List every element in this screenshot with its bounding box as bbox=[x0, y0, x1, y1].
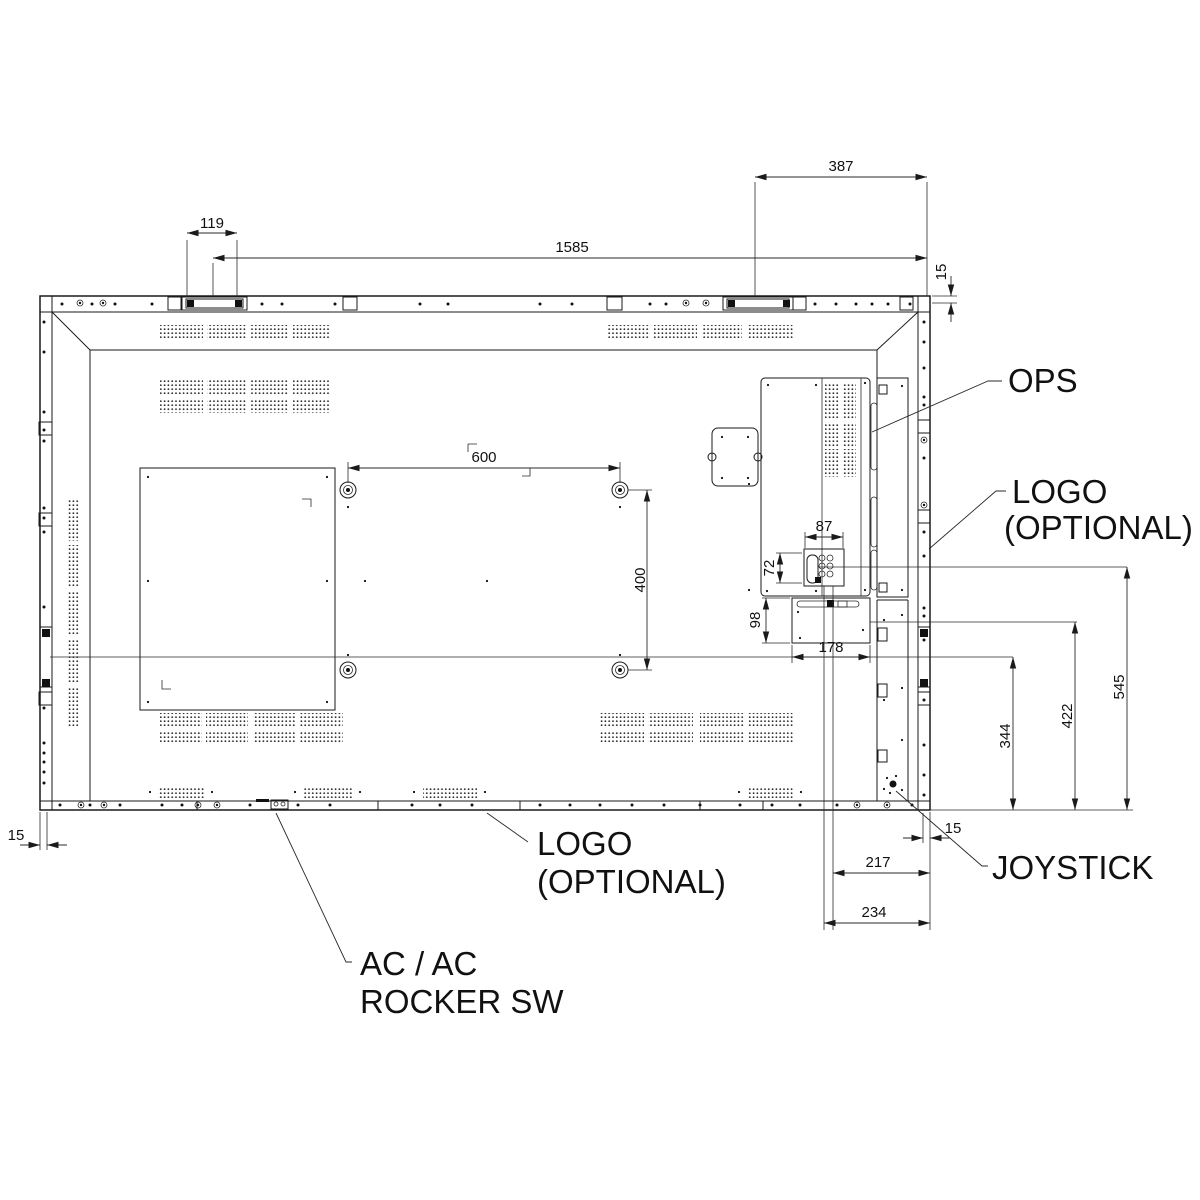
side-vent-strip-left bbox=[67, 498, 79, 728]
dim-overall-width: 1585 bbox=[555, 239, 588, 256]
dimension-texts: 119 1585 387 15 600 400 87 72 98 178 545… bbox=[8, 158, 1128, 921]
logo-right-leader-line bbox=[929, 491, 1006, 549]
ac-rocker-switch bbox=[256, 799, 288, 809]
dim-height-344: 344 bbox=[997, 723, 1014, 748]
vesa-hole bbox=[340, 662, 356, 678]
ac-inlet-box bbox=[708, 428, 762, 486]
carry-handle-left bbox=[182, 297, 247, 310]
keyhole-screws-top bbox=[77, 300, 709, 306]
control-button-cluster bbox=[804, 549, 844, 586]
vent-grilles bbox=[150, 325, 801, 800]
side-slot bbox=[871, 550, 877, 590]
reference-lines bbox=[40, 182, 1133, 930]
label-logo-right-line1: LOGO bbox=[1012, 473, 1107, 510]
label-ac-rocker-line1: AC / AC bbox=[360, 945, 477, 982]
dim-control-height: 72 bbox=[761, 560, 778, 577]
side-slot bbox=[871, 497, 877, 547]
dim-height-545: 545 bbox=[1111, 674, 1128, 699]
ops-leader-line bbox=[872, 381, 1002, 432]
top-edge-features bbox=[62, 297, 913, 310]
label-logo-bottom-line2: (OPTIONAL) bbox=[537, 863, 726, 900]
label-joystick: JOYSTICK bbox=[992, 849, 1153, 886]
right-edge-features bbox=[918, 322, 930, 795]
dim-box-height: 98 bbox=[747, 612, 764, 629]
vesa-hole bbox=[612, 662, 628, 678]
label-logo-right-line2: (OPTIONAL) bbox=[1004, 509, 1193, 546]
vesa-hole bbox=[340, 482, 356, 498]
label-ac-rocker-line2: ROCKER SW bbox=[360, 983, 564, 1020]
dim-vesa-horizontal: 600 bbox=[471, 449, 496, 466]
joystick-control bbox=[884, 776, 897, 793]
logo-bottom-leader-line bbox=[487, 813, 528, 842]
joystick-leader-line bbox=[896, 791, 988, 866]
dim-offset-234: 234 bbox=[861, 904, 886, 921]
ops-slot bbox=[877, 378, 908, 597]
label-logo-bottom-line1: LOGO bbox=[537, 825, 632, 862]
dim-offset-217: 217 bbox=[865, 854, 890, 871]
label-ops: OPS bbox=[1008, 362, 1078, 399]
dim-box-width: 178 bbox=[818, 639, 843, 656]
dim-top-right-offset: 387 bbox=[828, 158, 853, 175]
vesa-mount-area bbox=[140, 444, 628, 710]
callouts: OPS LOGO (OPTIONAL) JOYSTICK LOGO (OPTIO… bbox=[276, 362, 1193, 1020]
side-slot bbox=[871, 403, 877, 470]
dim-top-edge-margin: 15 bbox=[933, 264, 950, 281]
left-edge-features bbox=[39, 322, 79, 783]
display-rear-view-drawing: 119 1585 387 15 600 400 87 72 98 178 545… bbox=[0, 0, 1200, 1200]
dim-height-422: 422 bbox=[1059, 703, 1076, 728]
dim-handle-width: 119 bbox=[200, 215, 224, 232]
lower-channel bbox=[877, 600, 908, 801]
terminal-box bbox=[792, 598, 870, 643]
keyhole-screws-bottom bbox=[78, 802, 890, 808]
dim-joystick-edge-margin: 15 bbox=[945, 820, 962, 837]
dim-vesa-vertical: 400 bbox=[632, 567, 649, 592]
carry-handle-right bbox=[723, 297, 793, 310]
dimension-lines bbox=[20, 177, 1127, 923]
center-cover-plate bbox=[140, 468, 335, 710]
dim-left-edge-margin: 15 bbox=[8, 827, 25, 844]
engineering-drawing-canvas: 119 1585 387 15 600 400 87 72 98 178 545… bbox=[0, 0, 1200, 1200]
vesa-hole bbox=[612, 482, 628, 498]
ac-rocker-leader-line bbox=[276, 813, 352, 962]
dim-control-width: 87 bbox=[816, 518, 833, 535]
